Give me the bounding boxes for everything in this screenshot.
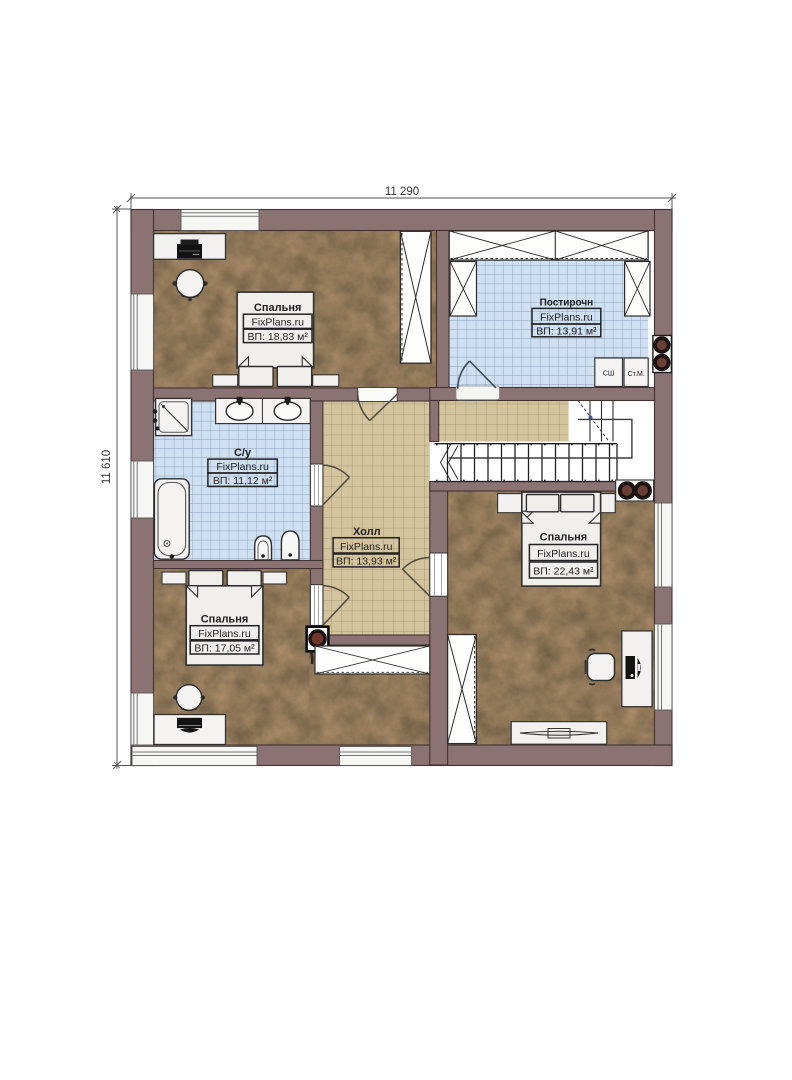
svg-text:Спальня: Спальня [540, 532, 588, 544]
svg-text:FixPlans.ru: FixPlans.ru [340, 541, 393, 553]
svg-text:Постирочн: Постирочн [540, 298, 594, 309]
svg-text:ВП: 22,43 м²: ВП: 22,43 м² [533, 566, 594, 578]
svg-text:FixPlans.ru: FixPlans.ru [537, 548, 590, 560]
svg-text:Холл: Холл [353, 526, 381, 538]
svg-text:Спальня: Спальня [201, 614, 249, 626]
svg-text:ВП: 17,05 м²: ВП: 17,05 м² [194, 643, 255, 655]
svg-text:ВП: 13,93 м²: ВП: 13,93 м² [336, 556, 397, 568]
svg-text:ВП: 13,91 м²: ВП: 13,91 м² [536, 326, 597, 338]
svg-text:ВП: 18,83 м²: ВП: 18,83 м² [248, 331, 309, 343]
svg-text:FixPlans.ru: FixPlans.ru [216, 461, 269, 473]
svg-text:Спальня: Спальня [254, 302, 302, 314]
svg-text:Ст.М.: Ст.М. [628, 371, 645, 378]
svg-text:11 290: 11 290 [385, 186, 419, 198]
svg-text:ВП: 11,12 м²: ВП: 11,12 м² [213, 475, 273, 487]
svg-text:FixPlans.ru: FixPlans.ru [198, 628, 251, 640]
svg-text:FixPlans.ru: FixPlans.ru [251, 316, 304, 328]
svg-text:СШ: СШ [603, 371, 614, 378]
svg-text:С/у: С/у [234, 447, 252, 459]
svg-text:FixPlans.ru: FixPlans.ru [540, 312, 593, 324]
svg-text:11 610: 11 610 [101, 450, 113, 484]
